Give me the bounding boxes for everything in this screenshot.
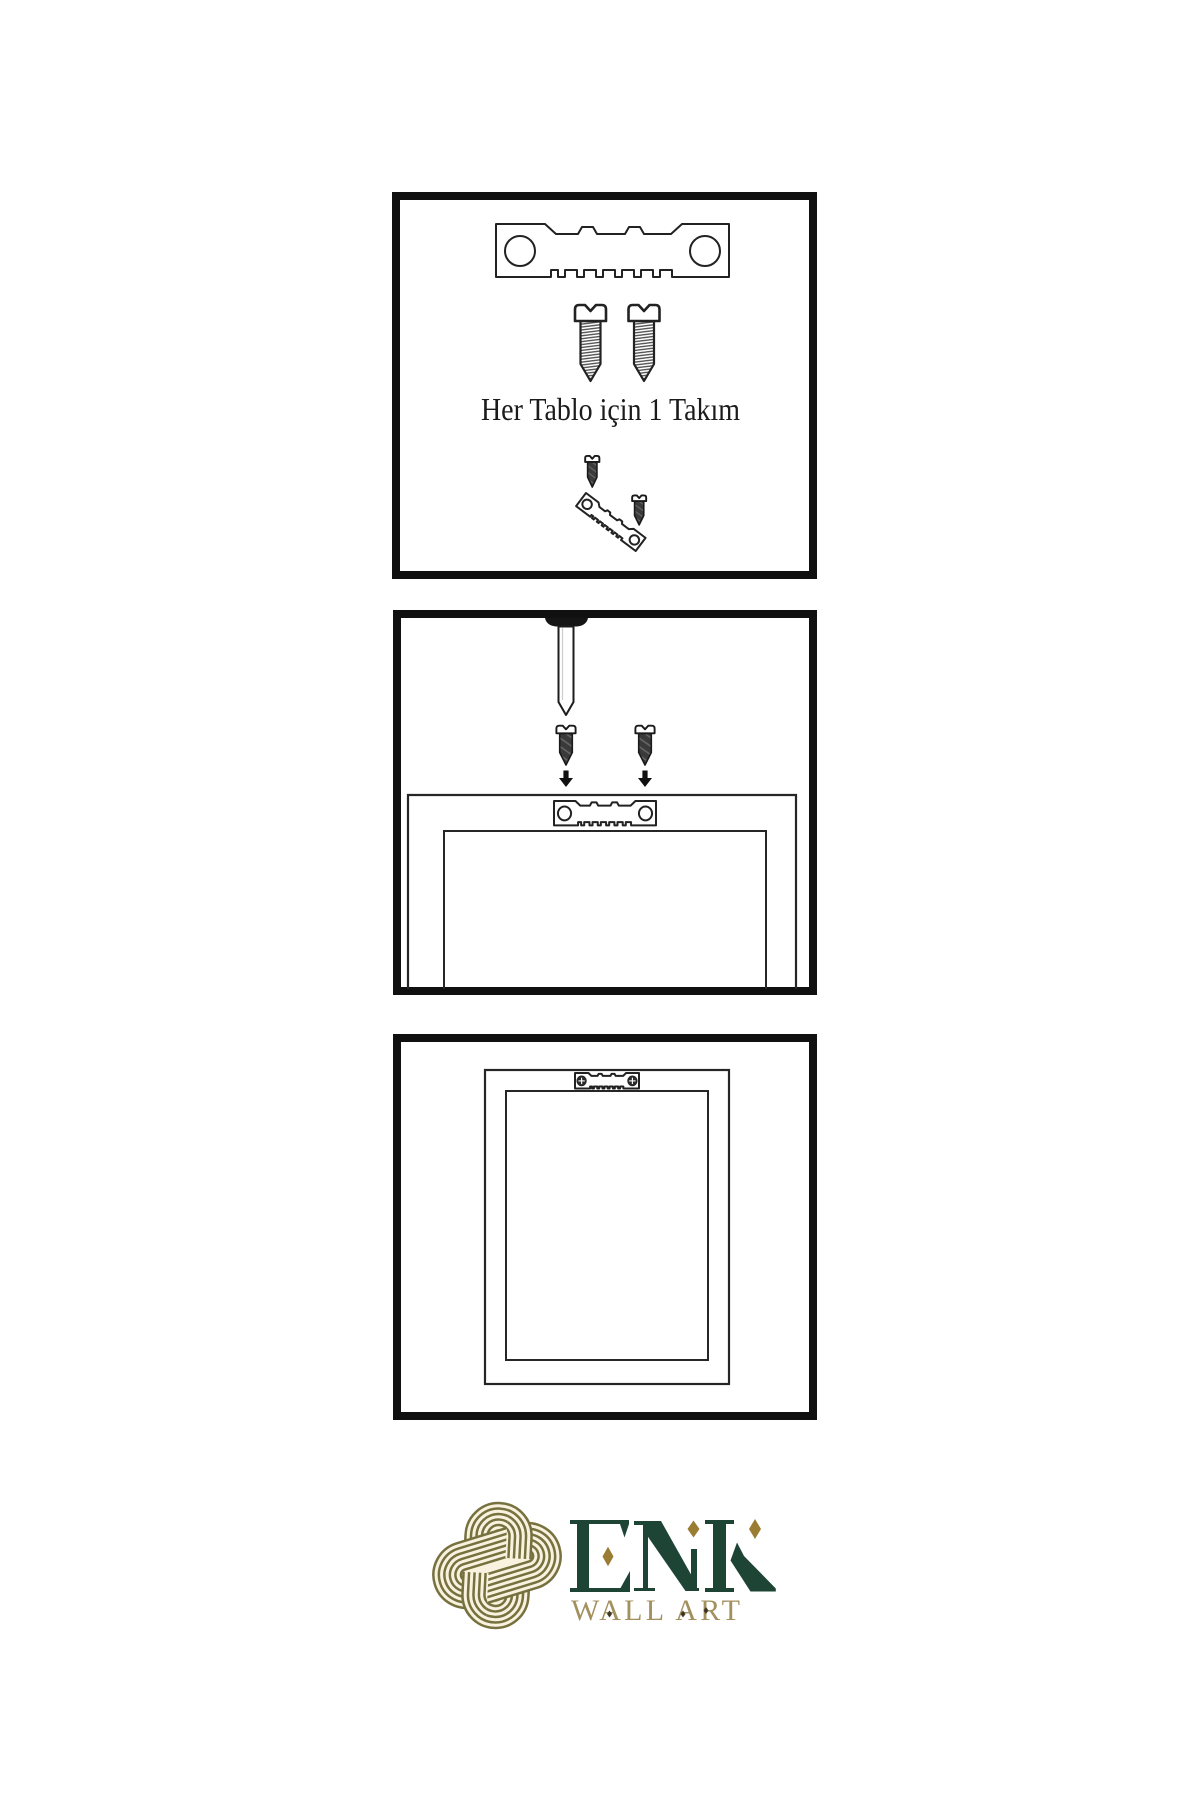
svg-text:Her Tablo için 1 Takım: Her Tablo için 1 Takım — [481, 392, 740, 427]
svg-text:WALL ART: WALL ART — [571, 1594, 743, 1627]
